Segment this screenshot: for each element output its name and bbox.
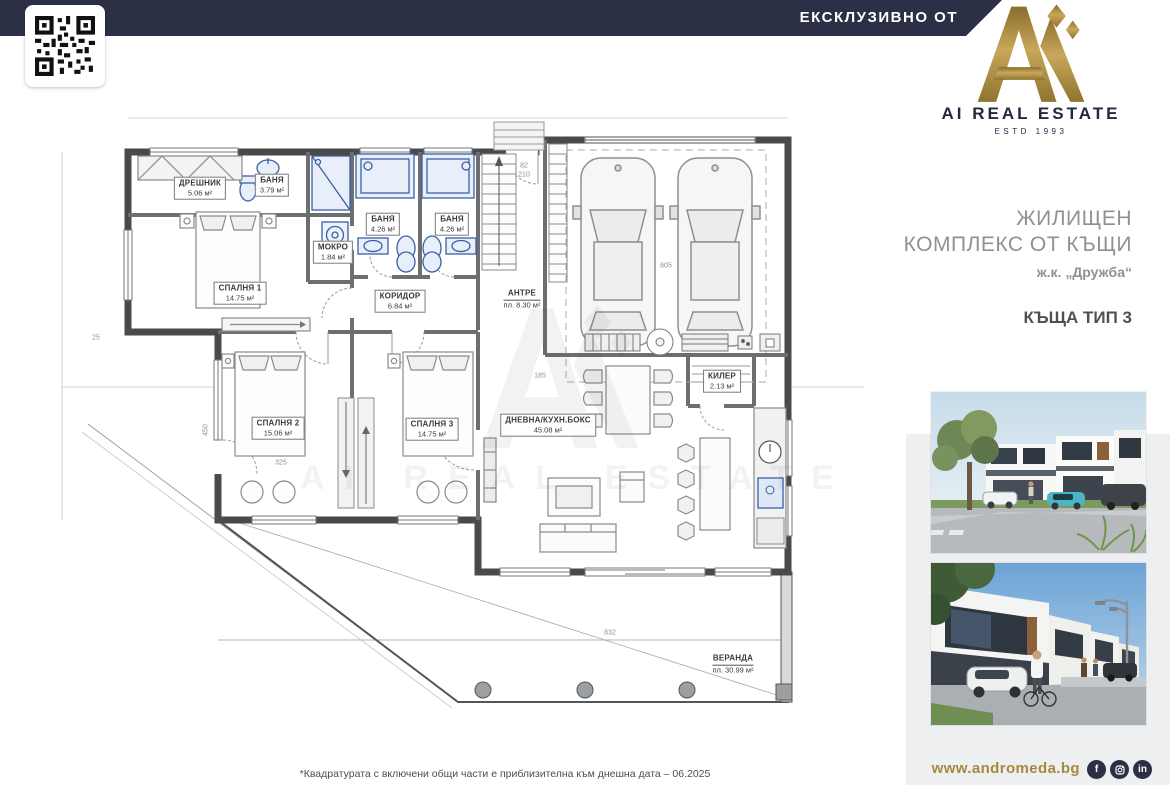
- room-label-banya3: БАНЯ4.26 м²: [435, 213, 469, 236]
- room-label-spalnya1: СПАЛНЯ 114.75 м²: [214, 282, 267, 305]
- dim-605: 605: [660, 263, 672, 270]
- dim-25: 25: [92, 335, 100, 342]
- dim-82: 82: [520, 163, 528, 170]
- room-label-spalnya2: СПАЛНЯ 215.06 м²: [252, 417, 305, 440]
- room-label-mokro: МОКРО1.84 м²: [313, 241, 353, 264]
- dim-325: 325: [275, 460, 287, 467]
- flyer-page: ЕКСКЛУЗИВНО ОТ: [0, 0, 1170, 785]
- car-1: [573, 158, 663, 346]
- linkedin-icon: in: [1133, 760, 1152, 779]
- room-label-veranda: ВЕРАНДАпл. 30.99 м²: [708, 653, 757, 676]
- room-label-antre: АНТРЕпл. 8.30 м²: [500, 288, 545, 311]
- car-2: [670, 158, 760, 346]
- floor-plan: [0, 0, 1170, 785]
- instagram-icon: [1110, 760, 1129, 779]
- room-label-spalnya3: СПАЛНЯ 314.75 м²: [406, 418, 459, 441]
- kitchen-fixtures: [754, 408, 786, 548]
- dim-210: 210: [518, 172, 530, 179]
- facebook-icon: f: [1087, 760, 1106, 779]
- dim-450: 450: [203, 424, 210, 436]
- disclaimer-text: *Квадратурата с включени общи части е пр…: [180, 768, 830, 780]
- room-label-banya1: БАНЯ3.79 м²: [255, 174, 289, 197]
- dim-185: 185: [534, 373, 546, 380]
- website-url: www.andromeda.bg: [912, 760, 1080, 777]
- dim-832: 832: [604, 630, 616, 637]
- room-label-dnevna: ДНЕВНА/КУХН.БОКС45.08 м²: [500, 414, 596, 437]
- room-label-banya2: БАНЯ4.26 м²: [366, 213, 400, 236]
- social-icons: f in: [1087, 760, 1152, 779]
- entrance-steps: [494, 122, 544, 150]
- room-label-koridor: КОРИДОР6.84 м²: [375, 290, 426, 313]
- room-label-dreshnik: ДРЕШНИК5.06 м²: [174, 177, 226, 200]
- room-label-kiler: КИЛЕР2.13 м²: [703, 370, 741, 393]
